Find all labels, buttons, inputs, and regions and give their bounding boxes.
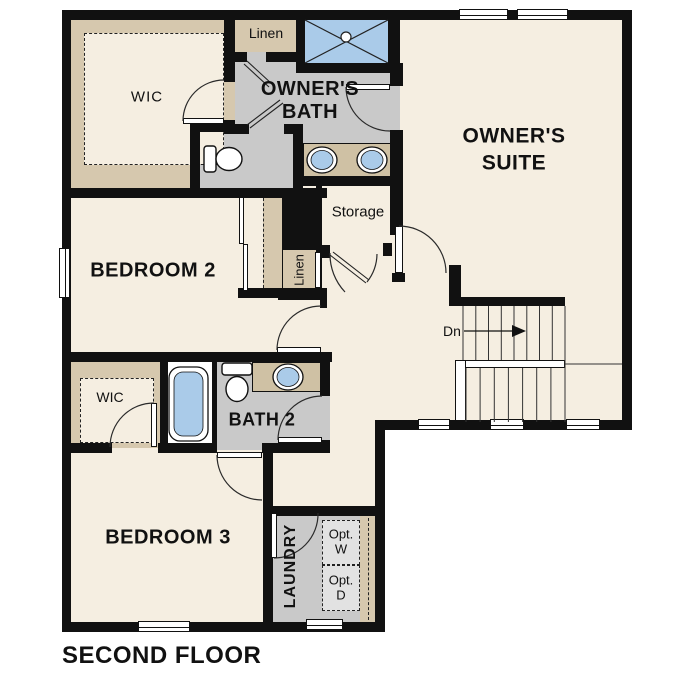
label-opt-w: Opt. W: [329, 527, 354, 558]
wall: [224, 12, 235, 82]
label-storage: Storage: [332, 203, 385, 220]
label-bedroom3: BEDROOM 3: [105, 527, 231, 550]
wall: [316, 186, 322, 248]
label-linen: Linen: [249, 25, 283, 41]
wall: [158, 443, 217, 453]
label-owners-bath: OWNER'S BATH: [261, 78, 359, 124]
wall: [262, 443, 330, 453]
tub-alcove-floor: [168, 362, 212, 443]
wall: [298, 176, 403, 186]
wall: [263, 506, 375, 516]
stair-landing-edge-h: [455, 360, 565, 368]
floor-plan: WIC Linen OWNER'S BATH OWNER'S SUITE Sto…: [0, 0, 687, 687]
bedroom2-door-leaf: [277, 347, 321, 353]
wic-door-leaf: [183, 118, 224, 124]
label-wic2: WIC: [96, 389, 123, 405]
label-linen-hall: Linen: [291, 254, 306, 286]
wall: [62, 443, 112, 453]
wall: [453, 297, 565, 306]
window: [490, 419, 524, 430]
wall: [622, 10, 632, 430]
laundry-door-leaf: [271, 513, 277, 558]
label-owners-suite: OWNER'S SUITE: [463, 123, 566, 178]
owners-vanity-counter: [303, 143, 400, 178]
wall: [62, 188, 327, 198]
bedroom2-closet-shelf: [263, 198, 282, 288]
wall: [190, 122, 200, 192]
wall: [238, 288, 327, 298]
wall: [235, 124, 249, 134]
window: [138, 621, 190, 632]
owners-suite-door-leaf: [395, 226, 403, 273]
bath2-vanity-counter: [252, 362, 322, 392]
wall: [62, 10, 71, 632]
bedroom2-closet-slider-2: [243, 244, 248, 291]
wall: [160, 352, 168, 453]
label-dn: Dn: [443, 323, 461, 339]
wall: [296, 63, 390, 73]
window: [306, 619, 343, 630]
wall: [320, 362, 330, 396]
window: [566, 419, 600, 430]
laundry-shelf-dash: [368, 518, 370, 620]
bath2-door-leaf: [278, 437, 322, 443]
label-wic: WIC: [131, 88, 163, 105]
wall: [375, 420, 385, 632]
wic2-door-leaf: [151, 403, 157, 447]
window: [418, 419, 450, 430]
wall: [390, 63, 403, 86]
shower-floor: [305, 20, 388, 65]
wic2-inner-area: [80, 378, 154, 443]
label-laundry: LAUNDRY: [282, 524, 300, 609]
wall: [296, 10, 305, 65]
wall: [392, 273, 405, 282]
label-opt-d: Opt. D: [329, 573, 354, 604]
wall: [212, 362, 217, 443]
window: [517, 9, 568, 20]
hall-linen-door: [315, 252, 321, 288]
window: [459, 9, 508, 20]
plan-title: SECOND FLOOR: [62, 642, 261, 670]
wall: [62, 352, 332, 362]
wall: [235, 52, 247, 62]
bedroom3-door-leaf: [217, 452, 262, 458]
stair-landing-edge-v: [455, 360, 466, 422]
label-bath2: BATH 2: [229, 410, 296, 431]
bedroom2-closet-slider-1: [239, 197, 244, 244]
window: [59, 248, 70, 298]
label-bedroom2: BEDROOM 2: [90, 260, 216, 283]
wall: [383, 243, 392, 256]
